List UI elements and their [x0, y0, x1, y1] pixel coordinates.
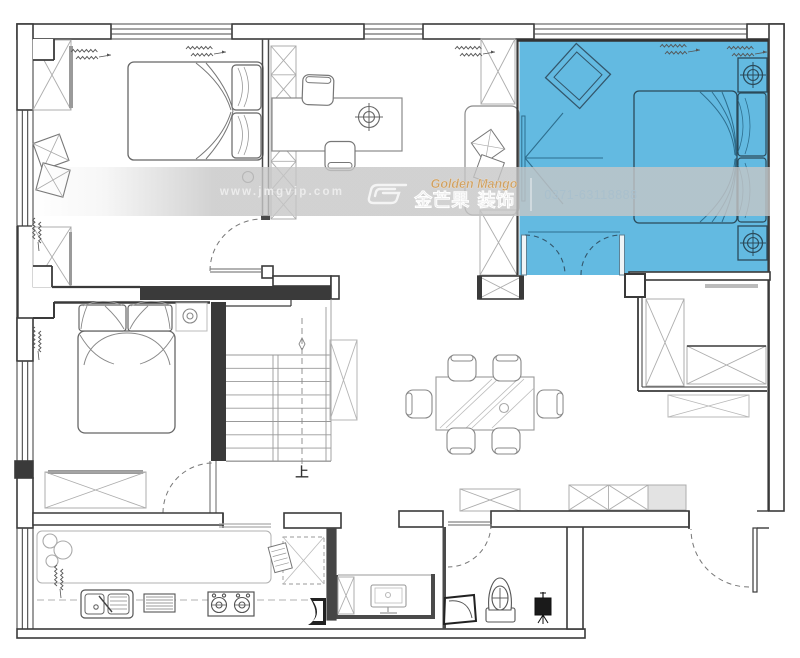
- svg-text:Golden Mango: Golden Mango: [431, 177, 518, 191]
- svg-text:www.jmgvip.com: www.jmgvip.com: [219, 186, 344, 198]
- svg-text:0371-63118888: 0371-63118888: [544, 188, 637, 202]
